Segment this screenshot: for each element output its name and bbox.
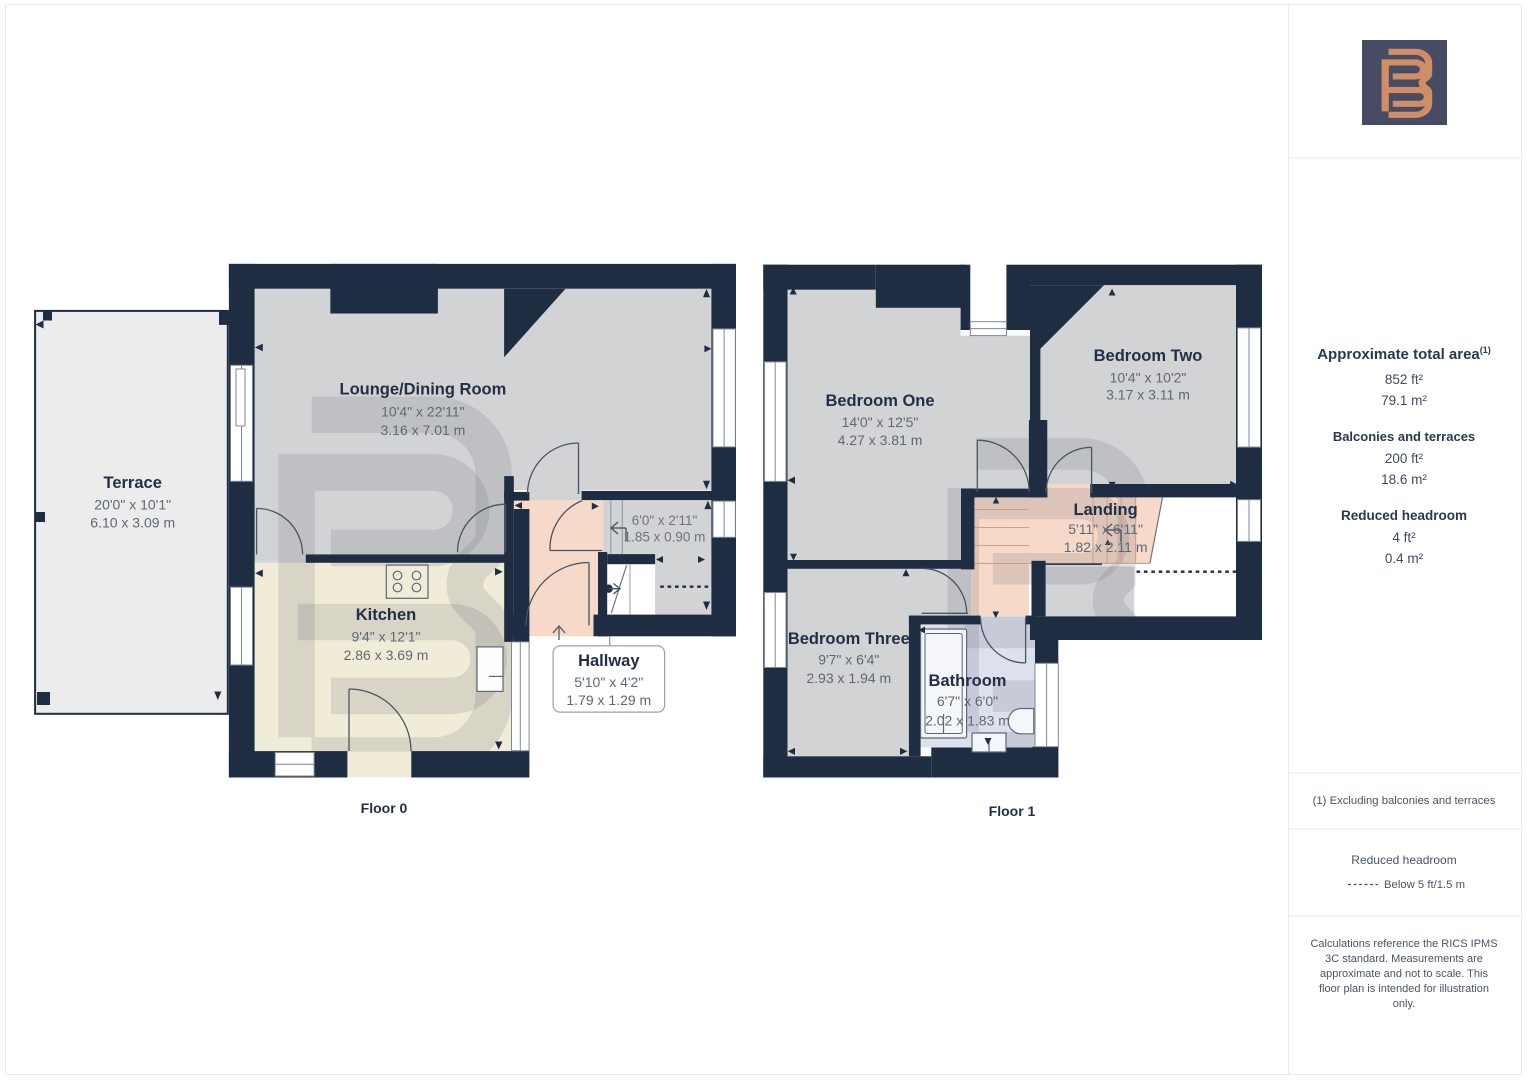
svg-text:only.: only. bbox=[1393, 998, 1415, 1010]
svg-text:5'10" x 4'2": 5'10" x 4'2" bbox=[574, 674, 643, 690]
svg-text:1.82 x 2.11 m: 1.82 x 2.11 m bbox=[1064, 539, 1148, 555]
svg-text:approximate and not to scale.: approximate and not to scale. This bbox=[1320, 968, 1488, 980]
svg-text:Floor 0: Floor 0 bbox=[361, 800, 408, 816]
svg-text:Balconies and terraces: Balconies and terraces bbox=[1333, 429, 1475, 444]
svg-text:6'0" x 2'11": 6'0" x 2'11" bbox=[632, 513, 698, 528]
svg-text:9'4" x 12'1": 9'4" x 12'1" bbox=[352, 629, 421, 645]
svg-text:6.10 x 3.09 m: 6.10 x 3.09 m bbox=[90, 515, 175, 531]
svg-text:20'0" x 10'1": 20'0" x 10'1" bbox=[94, 497, 171, 513]
svg-text:Approximate total area(1): Approximate total area(1) bbox=[1317, 345, 1491, 363]
svg-text:Bedroom Two: Bedroom Two bbox=[1094, 347, 1203, 365]
svg-text:1.79 x 1.29 m: 1.79 x 1.29 m bbox=[566, 692, 651, 708]
svg-text:2.86 x 3.69 m: 2.86 x 3.69 m bbox=[344, 647, 429, 663]
svg-text:(1) Excluding balconies and te: (1) Excluding balconies and terraces bbox=[1313, 795, 1496, 807]
svg-text:Floor 1: Floor 1 bbox=[989, 803, 1036, 819]
svg-text:3C standard. Measurements are: 3C standard. Measurements are bbox=[1325, 953, 1483, 965]
svg-text:Reduced headroom: Reduced headroom bbox=[1341, 508, 1467, 523]
svg-text:852 ft²: 852 ft² bbox=[1385, 372, 1424, 387]
svg-text:3.16 x 7.01 m: 3.16 x 7.01 m bbox=[380, 422, 465, 438]
svg-text:3.17 x 3.11 m: 3.17 x 3.11 m bbox=[1106, 387, 1190, 403]
svg-text:Bedroom Three: Bedroom Three bbox=[788, 630, 910, 648]
svg-text:floor plan is intended for ill: floor plan is intended for illustration bbox=[1319, 983, 1489, 995]
svg-text:Landing: Landing bbox=[1074, 501, 1138, 519]
svg-text:Calculations reference the RIC: Calculations reference the RICS IPMS bbox=[1310, 938, 1497, 950]
svg-text:200 ft²: 200 ft² bbox=[1385, 451, 1424, 466]
svg-text:0.4 m²: 0.4 m² bbox=[1385, 551, 1424, 566]
svg-text:6'7" x 6'0": 6'7" x 6'0" bbox=[937, 693, 998, 709]
svg-text:9'7" x 6'4": 9'7" x 6'4" bbox=[818, 652, 879, 668]
svg-text:Reduced headroom: Reduced headroom bbox=[1351, 853, 1456, 867]
svg-text:2.93 x 1.94 m: 2.93 x 1.94 m bbox=[806, 670, 891, 686]
svg-text:Bedroom One: Bedroom One bbox=[825, 392, 934, 410]
svg-text:5'11" x 6'11": 5'11" x 6'11" bbox=[1068, 521, 1143, 537]
svg-text:Lounge/Dining Room: Lounge/Dining Room bbox=[339, 381, 506, 399]
svg-text:4 ft²: 4 ft² bbox=[1392, 530, 1416, 545]
svg-text:Hallway: Hallway bbox=[578, 652, 640, 670]
svg-text:14'0" x 12'5": 14'0" x 12'5" bbox=[842, 414, 919, 430]
svg-text:2.02 x 1.83 m: 2.02 x 1.83 m bbox=[925, 713, 1010, 729]
svg-text:Kitchen: Kitchen bbox=[356, 606, 417, 624]
svg-text:Bathroom: Bathroom bbox=[929, 672, 1007, 690]
svg-text:Terrace: Terrace bbox=[103, 474, 161, 492]
svg-text:4.27 x 3.81 m: 4.27 x 3.81 m bbox=[838, 432, 923, 448]
svg-text:10'4" x 22'11": 10'4" x 22'11" bbox=[381, 404, 465, 420]
svg-text:18.6 m²: 18.6 m² bbox=[1381, 472, 1427, 487]
svg-text:10'4" x 10'2": 10'4" x 10'2" bbox=[1110, 370, 1187, 386]
svg-text:Below 5 ft/1.5 m: Below 5 ft/1.5 m bbox=[1384, 879, 1465, 891]
svg-text:79.1 m²: 79.1 m² bbox=[1381, 393, 1427, 408]
svg-text:1.85 x 0.90 m: 1.85 x 0.90 m bbox=[624, 530, 706, 545]
